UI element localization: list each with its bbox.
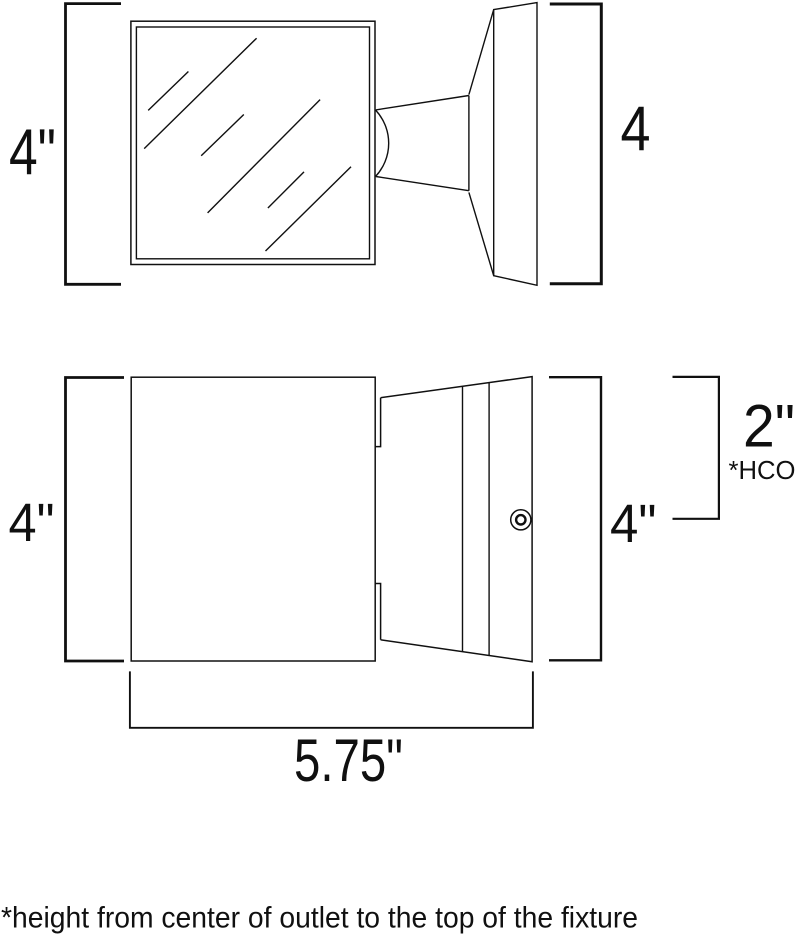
svg-text:4: 4 <box>621 94 651 164</box>
svg-text:4": 4" <box>9 115 56 188</box>
svg-text:*HCO: *HCO <box>729 455 796 485</box>
svg-text:*height from center of outlet: *height from center of outlet to the top… <box>1 902 638 935</box>
svg-text:4": 4" <box>610 495 657 554</box>
svg-text:2": 2" <box>743 393 795 460</box>
svg-text:4": 4" <box>9 494 55 553</box>
svg-text:5.75": 5.75" <box>294 727 403 794</box>
